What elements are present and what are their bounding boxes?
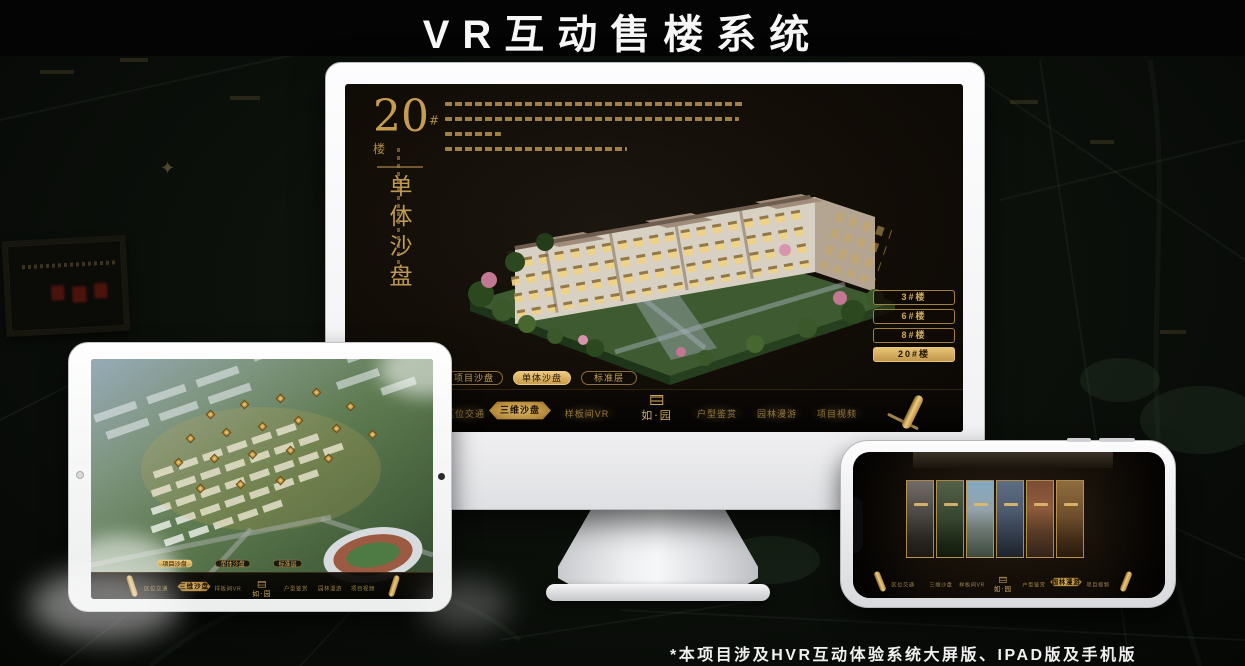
nav-item-garden-roam[interactable]: 园林漫游 <box>751 404 803 423</box>
scene-panel[interactable] <box>966 480 994 558</box>
brand-logo: 如·园 <box>994 577 1012 593</box>
hero-caption-decor <box>397 148 400 268</box>
nav-item-location[interactable]: 区位交通 <box>891 581 914 589</box>
logo-emblem-icon <box>651 395 664 405</box>
volume-button <box>1067 438 1091 442</box>
building-hero-block: 20#楼 单体沙盘 <box>373 94 443 324</box>
floor-button-8[interactable]: 8#楼 <box>873 328 955 343</box>
nav-item-floorplans[interactable]: 户型鉴赏 <box>691 404 743 423</box>
logo-text: 如·园 <box>641 407 673 423</box>
floor-button-group: 3#楼 6#楼 8#楼 20#楼 <box>873 290 957 366</box>
view-tab-group: 项目沙盘 单体沙盘 标准层 <box>445 371 637 385</box>
building-number: 20 <box>373 91 429 142</box>
brand-logo: 如·园 <box>252 581 272 598</box>
monitor-stand-base <box>546 584 770 601</box>
tab-single-sandbox[interactable]: 单体沙盘 <box>215 560 250 567</box>
floor-button-20[interactable]: 20#楼 <box>873 347 955 362</box>
nav-item-showroom-vr[interactable]: 样板间VR <box>215 585 242 593</box>
nav-item-garden-roam[interactable]: 园林漫游 <box>1050 577 1082 587</box>
tab-standard-floor[interactable]: 标准层 <box>273 560 302 567</box>
nav-item-project-video[interactable]: 项目视频 <box>1086 581 1109 589</box>
floor-button-6[interactable]: 6#楼 <box>873 309 955 324</box>
tab-standard-floor[interactable]: 标准层 <box>581 371 637 385</box>
page-title: VR互动售楼系统 <box>0 2 1245 60</box>
scene-panel[interactable] <box>906 480 934 558</box>
volume-button <box>1099 438 1135 442</box>
phone-notch <box>853 497 863 553</box>
nav-item-3d-sandbox[interactable]: 三维沙盘 <box>929 581 952 589</box>
tablet-screen: 项目沙盘 单体沙盘 标准层 区位交通 三维沙盘 样板间VR 如·园 户型鉴赏 园… <box>91 359 433 599</box>
building-3d-render <box>455 152 905 387</box>
logo-text: 如·园 <box>252 589 272 599</box>
nav-item-showroom-vr[interactable]: 样板间VR <box>559 404 616 423</box>
monitor-stand-neck <box>558 506 758 586</box>
compass-star-icon: ✦ <box>160 158 175 179</box>
nav-item-project-video[interactable]: 项目视频 <box>351 585 375 593</box>
phone-screen: 区位交通 三维沙盘 样板间VR 如·园 户型鉴赏 园林漫游 项目视频 <box>853 452 1165 598</box>
scroll-icon[interactable] <box>890 394 930 432</box>
scene-ceiling-beam <box>913 452 1113 468</box>
tab-project-sandbox[interactable]: 项目沙盘 <box>445 371 503 385</box>
phone-device: 区位交通 三维沙盘 样板间VR 如·园 户型鉴赏 园林漫游 项目视频 <box>840 440 1176 608</box>
logo-text: 如·园 <box>994 584 1012 593</box>
scene-panel[interactable] <box>1026 480 1054 558</box>
nav-item-3d-sandbox[interactable]: 三维沙盘 <box>178 581 211 592</box>
scene-panel[interactable] <box>1056 480 1084 558</box>
nav-item-showroom-vr[interactable]: 样板间VR <box>959 581 985 589</box>
footnote-text: *本项目涉及HVR互动体验系统大屏版、IPAD版及手机版 <box>670 641 1137 665</box>
scroll-icon[interactable] <box>871 570 891 594</box>
tablet-view-tabs: 项目沙盘 单体沙盘 标准层 <box>157 558 316 569</box>
nav-item-floorplans[interactable]: 户型鉴赏 <box>284 585 308 593</box>
scene-panel[interactable] <box>996 480 1024 558</box>
logo-emblem-icon <box>258 581 266 587</box>
floor-button-3[interactable]: 3#楼 <box>873 290 955 305</box>
tab-single-sandbox[interactable]: 单体沙盘 <box>513 371 571 385</box>
phone-bottom-nav: 区位交通 三维沙盘 样板间VR 如·园 户型鉴赏 园林漫游 项目视频 <box>853 570 1165 594</box>
scroll-icon[interactable] <box>383 575 403 599</box>
fog-decor <box>30 570 180 640</box>
logo-emblem-icon <box>999 577 1007 583</box>
fog-decor <box>420 580 510 630</box>
nav-item-floorplans[interactable]: 户型鉴赏 <box>1022 581 1045 589</box>
background-plaque <box>2 235 131 337</box>
scene-panel-row <box>906 480 1084 558</box>
brand-logo: 如·园 <box>641 395 673 423</box>
scroll-icon[interactable] <box>1115 570 1135 594</box>
tab-project-sandbox[interactable]: 项目沙盘 <box>157 560 192 567</box>
scene-panel[interactable] <box>936 480 964 558</box>
nav-item-3d-sandbox[interactable]: 三维沙盘 <box>489 400 551 421</box>
nav-item-project-video[interactable]: 项目视频 <box>811 404 863 423</box>
nav-item-garden-roam[interactable]: 园林漫游 <box>318 585 342 593</box>
hero-divider <box>377 166 423 168</box>
camera-icon <box>76 471 84 479</box>
home-button[interactable] <box>438 473 445 480</box>
